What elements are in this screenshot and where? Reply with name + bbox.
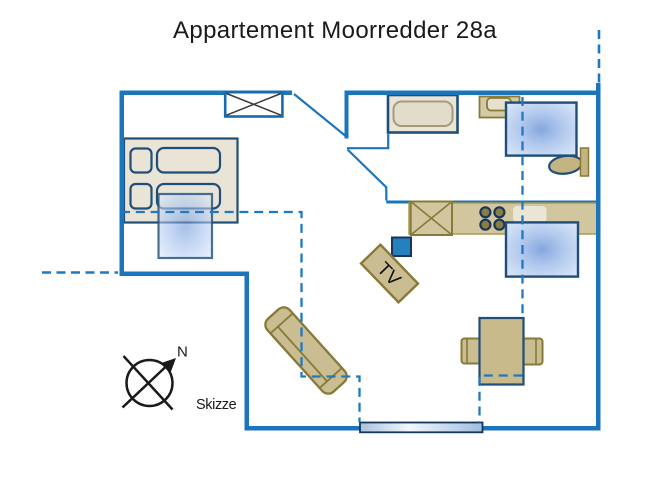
svg-text:Skizze: Skizze — [196, 397, 237, 413]
svg-text:Appartement Moorredder 28a: Appartement Moorredder 28a — [173, 17, 497, 44]
svg-text:N: N — [177, 344, 188, 361]
